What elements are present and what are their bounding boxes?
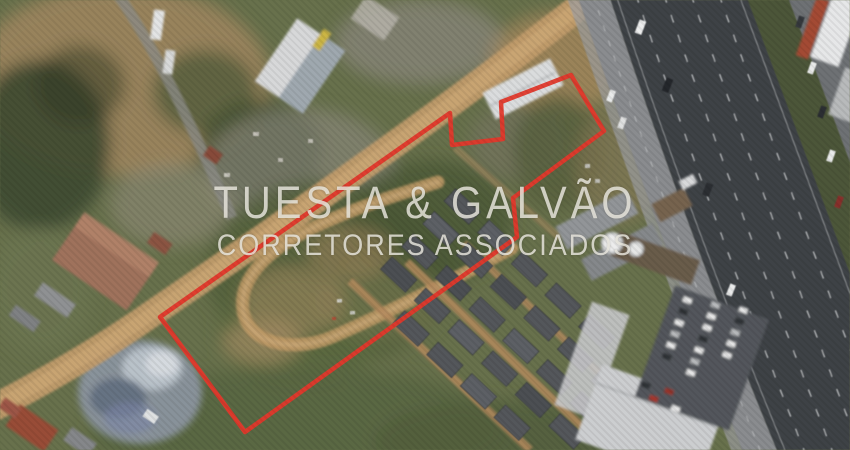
property-boundary-line [160,75,604,432]
property-boundary-overlay [0,0,850,450]
listing-aerial-image[interactable]: TUESTA & GALVÃO CORRETORES ASSOCIADOS [0,0,850,450]
